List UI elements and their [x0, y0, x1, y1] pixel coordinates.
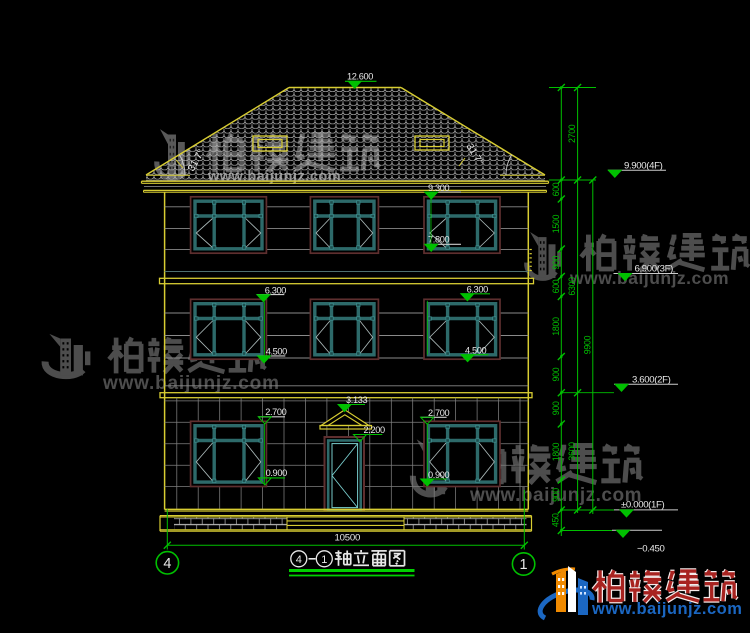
- svg-text:2.700: 2.700: [265, 407, 286, 417]
- svg-text:www.baijunjz.com: www.baijunjz.com: [591, 600, 742, 618]
- svg-text:600: 600: [551, 279, 561, 293]
- svg-text:600: 600: [551, 182, 561, 196]
- svg-text:1500: 1500: [551, 214, 561, 233]
- svg-text:10500: 10500: [335, 533, 361, 544]
- svg-text:6.300: 6.300: [265, 285, 286, 295]
- svg-text:6300: 6300: [567, 277, 577, 296]
- svg-text:3600: 3600: [567, 442, 577, 461]
- svg-text:4: 4: [163, 556, 171, 572]
- svg-text:900: 900: [551, 367, 561, 381]
- svg-text:1800: 1800: [551, 317, 561, 336]
- svg-text:3.133: 3.133: [346, 395, 367, 405]
- svg-text:4.500: 4.500: [266, 347, 287, 357]
- svg-text:900: 900: [551, 401, 561, 415]
- svg-text:www.baijunjz.com: www.baijunjz.com: [102, 373, 280, 394]
- svg-text:6.300: 6.300: [467, 285, 488, 295]
- svg-text:0.900: 0.900: [428, 470, 449, 480]
- svg-text:9900: 9900: [582, 335, 592, 354]
- svg-text:4.500: 4.500: [465, 345, 486, 355]
- svg-text:2.700: 2.700: [428, 408, 449, 418]
- svg-text:4: 4: [296, 554, 302, 566]
- svg-text:900: 900: [551, 488, 561, 502]
- svg-text:12.600: 12.600: [347, 72, 373, 82]
- svg-text:0.900: 0.900: [266, 468, 287, 478]
- svg-text:900: 900: [551, 255, 561, 269]
- svg-text:2.200: 2.200: [364, 425, 385, 435]
- svg-text:6.900(3F): 6.900(3F): [635, 264, 674, 275]
- svg-text:1800: 1800: [551, 442, 561, 461]
- svg-text:−0.450: −0.450: [637, 544, 665, 555]
- svg-text:450: 450: [551, 513, 561, 527]
- svg-text:1: 1: [520, 557, 528, 573]
- svg-text:1: 1: [321, 554, 327, 566]
- svg-text:±0.000(1F): ±0.000(1F): [621, 500, 665, 511]
- svg-text:2700: 2700: [567, 124, 577, 143]
